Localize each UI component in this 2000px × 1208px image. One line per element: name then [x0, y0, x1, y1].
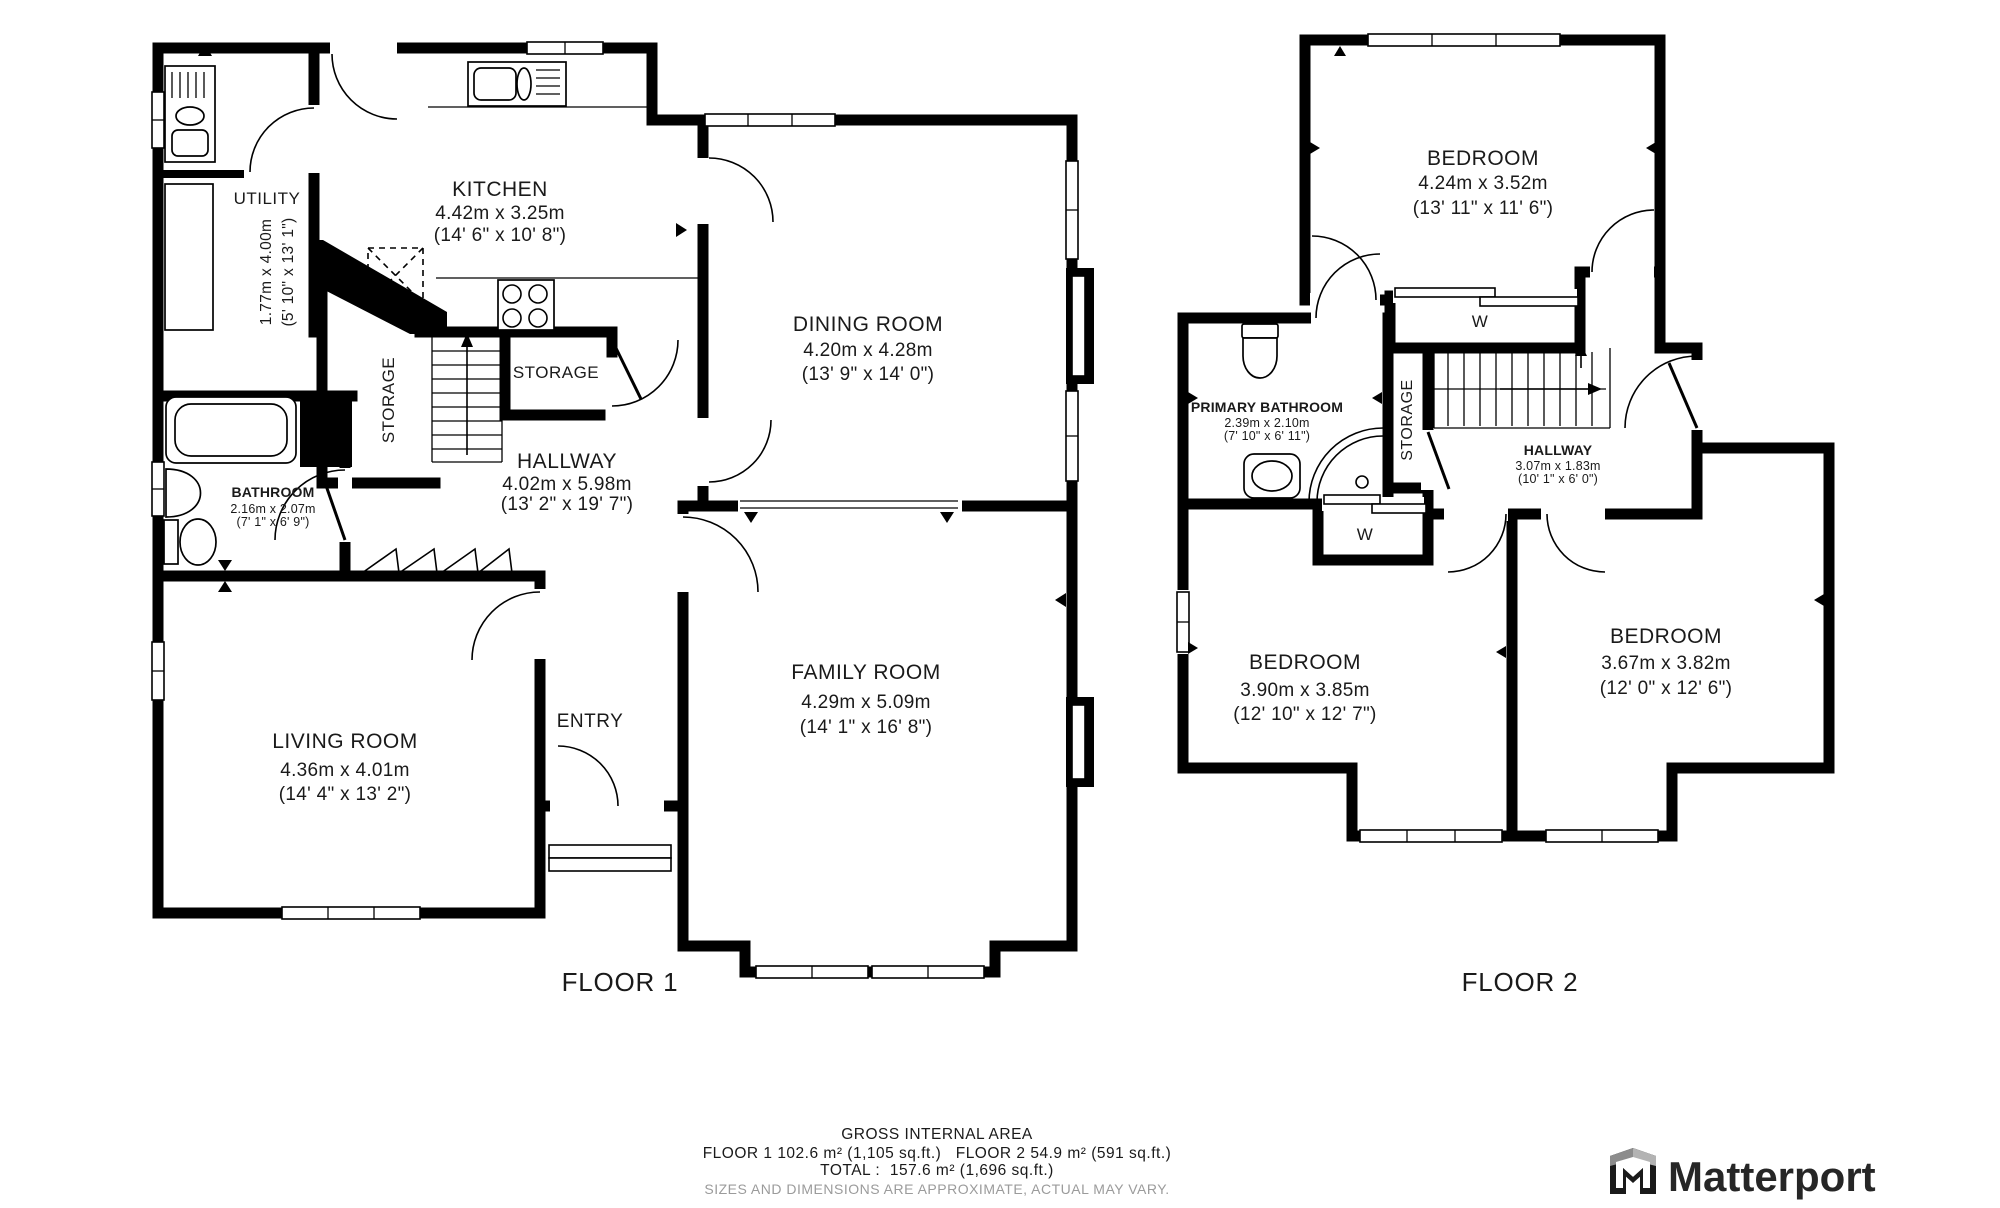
- matterport-branding: Matterport: [1610, 1148, 1876, 1200]
- storage-right-label: STORAGE: [513, 363, 599, 382]
- kitchen-sink: [428, 62, 652, 107]
- floor-areas-line: FLOOR 1 102.6 m² (1,105 sq.ft.) FLOOR 2 …: [703, 1145, 1172, 1162]
- closet-left-label: W: [1357, 525, 1374, 544]
- utility-dims-m: 1.77m x 4.00m: [258, 219, 275, 325]
- porch-steps: [549, 845, 671, 871]
- total-area-line: TOTAL : 157.6 m² (1,696 sq.ft.): [820, 1162, 1054, 1179]
- storage-left-label: STORAGE: [379, 357, 398, 443]
- bedroom-left-label: BEDROOM: [1249, 651, 1361, 674]
- primary-bathroom-label: PRIMARY BATHROOM: [1191, 399, 1343, 415]
- kitchen-dims-ft: (14' 6" x 10' 8"): [434, 225, 567, 246]
- living-dims-ft: (14' 4" x 13' 2"): [279, 784, 412, 805]
- sink-floor2: [1244, 454, 1300, 498]
- floor2-caption: FLOOR 2: [1462, 967, 1579, 997]
- closet-top-label: W: [1472, 312, 1489, 331]
- bedroom-top-dims-m: 4.24m x 3.52m: [1418, 173, 1548, 194]
- matterport-logo-icon: [1610, 1148, 1656, 1194]
- bedroom-top-label: BEDROOM: [1427, 147, 1539, 170]
- bedroom-right-label: BEDROOM: [1610, 625, 1722, 648]
- hallway-dims-ft: (13' 2" x 19' 7"): [501, 494, 634, 515]
- utility-counter: [165, 184, 213, 330]
- floorplan-drawing: UTILITY 1.77m x 4.00m (5' 10" x 13' 1") …: [0, 0, 2000, 1208]
- bathtub: [166, 397, 296, 463]
- kitchen-hob: [436, 278, 700, 330]
- bedroom-left-dims-m: 3.90m x 3.85m: [1240, 680, 1370, 701]
- toilet: [164, 519, 216, 565]
- entry-label: ENTRY: [557, 711, 624, 732]
- utility-label: UTILITY: [234, 189, 301, 208]
- floor2-plan: BEDROOM 4.24m x 3.52m (13' 11" x 11' 6")…: [1176, 34, 1829, 842]
- corner-shower: [1309, 428, 1383, 502]
- dining-dims-ft: (13' 9" x 14' 0"): [802, 364, 935, 385]
- family-chimney-window: [1072, 705, 1085, 779]
- bedroom-right-dims-m: 3.67m x 3.82m: [1601, 653, 1731, 674]
- hallway-floor2-dims-m: 3.07m x 1.83m: [1515, 459, 1600, 473]
- primary-bathroom-dims-ft: (7' 10" x 6' 11"): [1224, 429, 1310, 443]
- bedroom-top-dims-ft: (13' 11" x 11' 6"): [1413, 198, 1554, 219]
- hallway-floor2-dims-ft: (10' 1" x 6' 0"): [1518, 472, 1598, 486]
- bathroom-chimney: [300, 391, 352, 467]
- kitchen-dims-m: 4.42m x 3.25m: [435, 203, 565, 224]
- dining-dims-m: 4.20m x 4.28m: [803, 340, 933, 361]
- primary-bathroom-dims-m: 2.39m x 2.10m: [1224, 416, 1309, 430]
- washer-dryer: [165, 66, 215, 162]
- stairs-floor1: [432, 333, 502, 462]
- bathroom-sink: [166, 469, 201, 517]
- dining-label: DINING ROOM: [793, 313, 943, 336]
- hallway-floor2-label: HALLWAY: [1524, 442, 1593, 458]
- bathroom-label: BATHROOM: [232, 484, 315, 500]
- toilet-floor2: [1242, 324, 1278, 378]
- bedroom-right-dims-ft: (12' 0" x 12' 6"): [1600, 678, 1733, 699]
- footer: GROSS INTERNAL AREA FLOOR 1 102.6 m² (1,…: [703, 1126, 1172, 1197]
- storage-floor2-label: STORAGE: [1399, 379, 1416, 460]
- family-dims-ft: (14' 1" x 16' 8"): [800, 717, 933, 738]
- living-label: LIVING ROOM: [272, 730, 418, 753]
- living-dims-m: 4.36m x 4.01m: [280, 760, 410, 781]
- dining-bay-window: [1072, 276, 1085, 376]
- family-label: FAMILY ROOM: [791, 661, 940, 684]
- kitchen-angled-wall: [309, 240, 447, 334]
- matterport-wordmark: Matterport: [1668, 1153, 1876, 1200]
- bathroom-dims-ft: (7' 1" x 6' 9"): [237, 515, 310, 529]
- disclaimer-text: SIZES AND DIMENSIONS ARE APPROXIMATE, AC…: [704, 1181, 1169, 1197]
- floor1-caption: FLOOR 1: [562, 967, 679, 997]
- family-dims-m: 4.29m x 5.09m: [801, 692, 931, 713]
- utility-dims-ft: (5' 10" x 13' 1"): [280, 217, 297, 326]
- hallway-label: HALLWAY: [517, 450, 617, 473]
- stairs-floor2: [1434, 344, 1610, 428]
- bedroom-left-dims-ft: (12' 10" x 12' 7"): [1233, 704, 1376, 725]
- bathroom-dims-m: 2.16m x 2.07m: [230, 502, 315, 516]
- hallway-dims-m: 4.02m x 5.98m: [502, 474, 632, 495]
- gross-area-title: GROSS INTERNAL AREA: [841, 1126, 1033, 1143]
- kitchen-label: KITCHEN: [452, 178, 548, 201]
- floorplan-page: UTILITY 1.77m x 4.00m (5' 10" x 13' 1") …: [0, 0, 2000, 1208]
- floor1-plan: UTILITY 1.77m x 4.00m (5' 10" x 13' 1") …: [152, 41, 1094, 978]
